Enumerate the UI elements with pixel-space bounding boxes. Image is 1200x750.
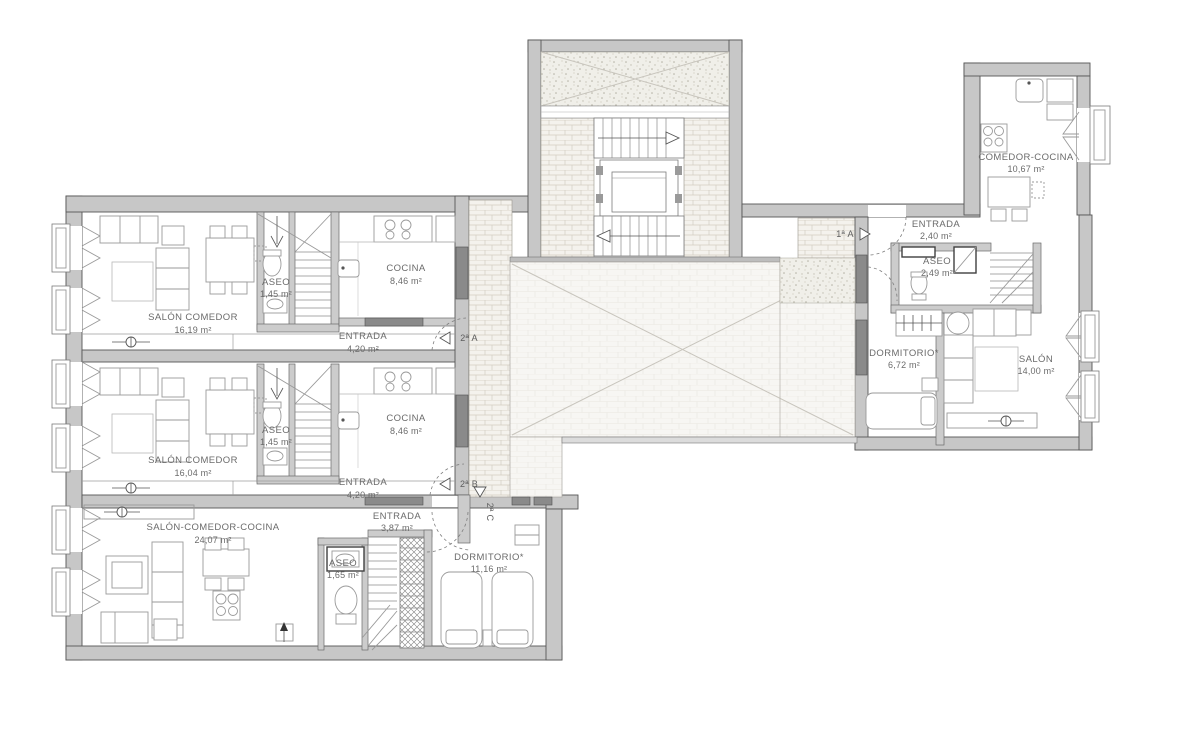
door-tag-label: 2ª A: [460, 333, 478, 343]
room-label: ENTRADA: [912, 219, 960, 230]
room-area: 16,04 m²: [174, 468, 211, 478]
room-label: COCINA: [386, 263, 426, 274]
door-tag-label: 2ª C: [485, 503, 495, 522]
section-mark: [112, 337, 150, 347]
room-area: 1,45 m²: [260, 437, 292, 447]
window-box: [52, 424, 100, 472]
section-mark: [104, 507, 140, 517]
stair-core: [594, 118, 684, 256]
room-label: ASEO: [262, 425, 290, 436]
window-box: [52, 360, 100, 408]
window-box: [52, 286, 100, 334]
room-label: SALÓN COMEDOR: [148, 312, 238, 323]
room-area: 2,49 m²: [921, 268, 953, 278]
room-label: DORMITORIO*: [454, 552, 524, 563]
stair-flight-upper: [594, 118, 684, 158]
brick-pier-left: [541, 118, 594, 257]
floor-plan-canvas: SALÓN COMEDOR 16,19 m² ASEO 1,45 m² COCI…: [0, 0, 1200, 750]
room-area: 3,87 m²: [381, 523, 413, 533]
room-area: 10,67 m²: [1007, 164, 1044, 174]
floor-plan-drawing: SALÓN COMEDOR 16,19 m² ASEO 1,45 m² COCI…: [0, 0, 1200, 750]
stair-flight-lower: [594, 216, 684, 256]
window-box: [52, 506, 100, 554]
window-box: [52, 568, 100, 616]
room-area: 4,20 m²: [347, 344, 379, 354]
lightwell: [780, 258, 855, 303]
elevator: [596, 160, 682, 216]
section-mark: [112, 483, 150, 493]
room-label: ENTRADA: [373, 511, 421, 522]
room-area: 4,20 m²: [347, 490, 379, 500]
room-label: ASEO: [329, 558, 357, 569]
room-label: SALÓN COMEDOR: [148, 455, 238, 466]
window-box: [1066, 311, 1099, 362]
room-label: COCINA: [386, 413, 426, 424]
room-label: SALÓN: [1019, 354, 1053, 365]
room-area: 6,72 m²: [888, 360, 920, 370]
room-label: ASEO: [262, 277, 290, 288]
room-label: DORMITORIO*: [869, 348, 939, 359]
window-box: [1066, 371, 1099, 422]
section-mark: [988, 416, 1024, 426]
room-label: ENTRADA: [339, 477, 387, 488]
door-tag-label: 1ª A: [836, 229, 854, 239]
room-area: 11,16 m²: [471, 564, 507, 574]
door-tag-2b: 2ª B: [440, 478, 478, 490]
window-box: [52, 224, 100, 272]
room-area: 24,07 m²: [194, 535, 231, 545]
room-label: SALÓN-COMEDOR-COCINA: [146, 522, 279, 533]
room-area: 8,46 m²: [390, 276, 422, 286]
brick-pier-right: [684, 118, 729, 257]
room-area: 1,45 m²: [260, 289, 292, 299]
room-area: 2,40 m²: [920, 231, 952, 241]
room-area: 14,00 m²: [1017, 366, 1054, 376]
room-area: 16,19 m²: [174, 325, 211, 335]
room-label: COMEDOR-COCINA: [978, 152, 1074, 163]
room-area: 8,46 m²: [390, 426, 422, 436]
room-area: 1,65 m²: [327, 570, 359, 580]
brick-wall-strip: [469, 200, 512, 497]
stair-down-hatch: [400, 538, 424, 648]
room-label: ASEO: [923, 256, 951, 267]
room-label: ENTRADA: [339, 331, 387, 342]
